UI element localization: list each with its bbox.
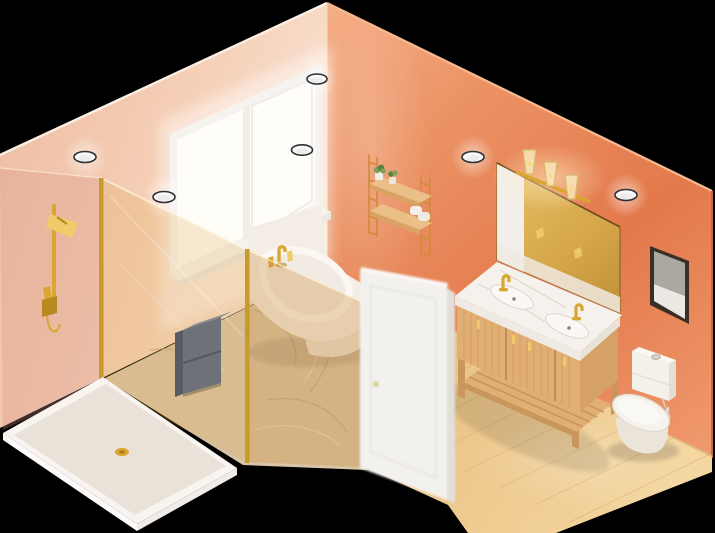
glass-frame-post-right: [245, 249, 250, 463]
bathroom-render: [0, 0, 715, 533]
door: [360, 267, 455, 504]
isometric-bathroom-scene: [0, 0, 715, 533]
spotlight: [297, 59, 337, 99]
flush-button: [652, 355, 661, 360]
door-edge: [447, 288, 455, 504]
spotlight: [142, 175, 186, 219]
window-mullion: [243, 105, 250, 243]
door-knob: [373, 381, 378, 386]
spotlight: [63, 135, 107, 179]
spotlight: [604, 173, 648, 217]
spotlight: [282, 130, 322, 170]
spotlight: [451, 135, 495, 179]
vanity-sconce: [492, 144, 608, 212]
glass-frame-post-left: [99, 178, 104, 387]
